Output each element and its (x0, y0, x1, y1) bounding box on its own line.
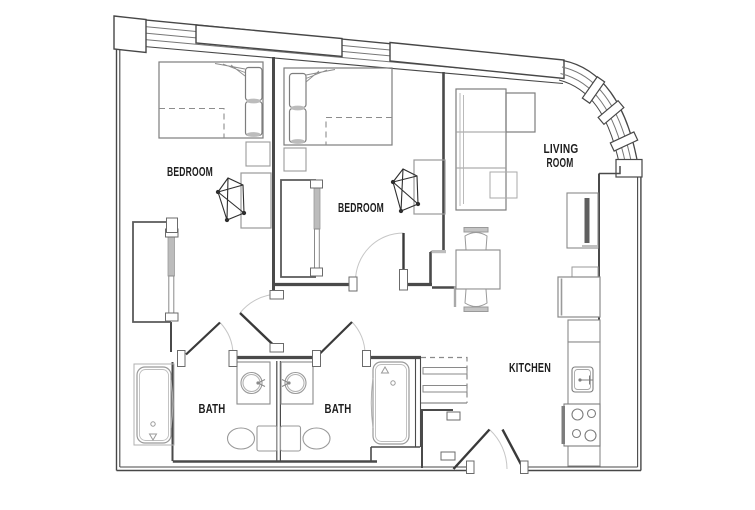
closet (133, 222, 178, 322)
sliding-door-panel (315, 229, 320, 268)
door-jamb (447, 412, 460, 420)
sliding-door-panel (169, 276, 174, 314)
door-jamb (467, 461, 475, 474)
door-jamb (400, 270, 408, 291)
bed-icon (284, 68, 392, 145)
hallway-door (240, 291, 284, 353)
bath-1: BATH (134, 323, 277, 452)
door-jamb (349, 277, 357, 291)
dining-nook (456, 228, 500, 312)
door-jamb (270, 344, 284, 353)
floor-plan-drawing: BEDROOM (0, 0, 755, 510)
wall-pier (114, 16, 146, 53)
bedroom-2-label: BEDROOM (338, 200, 384, 215)
desk-chair-icon (391, 169, 419, 213)
sliding-door-panel (314, 188, 320, 229)
door-jamb (441, 452, 455, 460)
bath-1-label: BATH (199, 401, 226, 416)
exterior-walls (117, 18, 642, 471)
toilet-icon (281, 426, 331, 451)
bathtub-icon (371, 362, 409, 444)
door-jamb (313, 351, 321, 367)
sofa-sectional (456, 89, 535, 210)
bath-2: BATH (281, 322, 410, 451)
tv-console (567, 193, 598, 248)
pillow (246, 102, 263, 136)
wall-pier (390, 43, 564, 79)
stove-icon (562, 404, 601, 446)
nightstand (284, 148, 306, 171)
bathroom-sink-vanity (237, 362, 270, 404)
dining-table (456, 250, 500, 289)
interior-door (313, 322, 371, 367)
tv-icon (585, 198, 590, 243)
living-room-label: LIVING (544, 141, 579, 156)
wall-pier (582, 77, 642, 177)
kitchen-label: KITCHEN (509, 360, 551, 375)
bathroom-sink-vanity (281, 362, 313, 404)
interior-door (178, 323, 238, 367)
dining-chair (464, 290, 488, 312)
bedroom-1-label: BEDROOM (167, 164, 213, 179)
bath-2-label: BATH (325, 401, 352, 416)
door-jamb (363, 351, 371, 367)
door-jamb (178, 351, 186, 367)
coffee-table (490, 172, 517, 198)
linen-shelves (421, 358, 467, 404)
door-jamb (270, 291, 284, 300)
door-jamb (229, 351, 237, 367)
pillow (290, 74, 307, 108)
living-room-label: ROOM (547, 155, 574, 170)
living-room: LIVING ROOM (456, 89, 598, 248)
entry-door (441, 412, 528, 474)
door-jamb (167, 218, 178, 233)
kitchen: KITCHEN (509, 267, 600, 466)
kitchen-counter (568, 320, 600, 342)
toilet-icon (228, 426, 278, 451)
window-band (114, 16, 564, 84)
dining-chair (464, 228, 488, 250)
bedroom-2: BEDROOM (281, 68, 445, 291)
pillow (290, 109, 307, 143)
door-jamb (521, 461, 529, 474)
bathtub-icon (134, 364, 174, 445)
sliding-door-panel (168, 237, 175, 276)
bed-icon (159, 62, 263, 138)
wall-pier (196, 25, 342, 57)
interior-walls (171, 57, 620, 468)
nightstand (246, 142, 270, 166)
pillow (246, 68, 263, 101)
wall-recess (572, 267, 598, 277)
bedroom-1: BEDROOM (133, 62, 271, 322)
floor-plan: BEDROOM (0, 0, 755, 510)
closet (281, 180, 323, 277)
desk (241, 173, 271, 228)
fridge-icon (558, 277, 600, 317)
interior-door (349, 233, 408, 291)
